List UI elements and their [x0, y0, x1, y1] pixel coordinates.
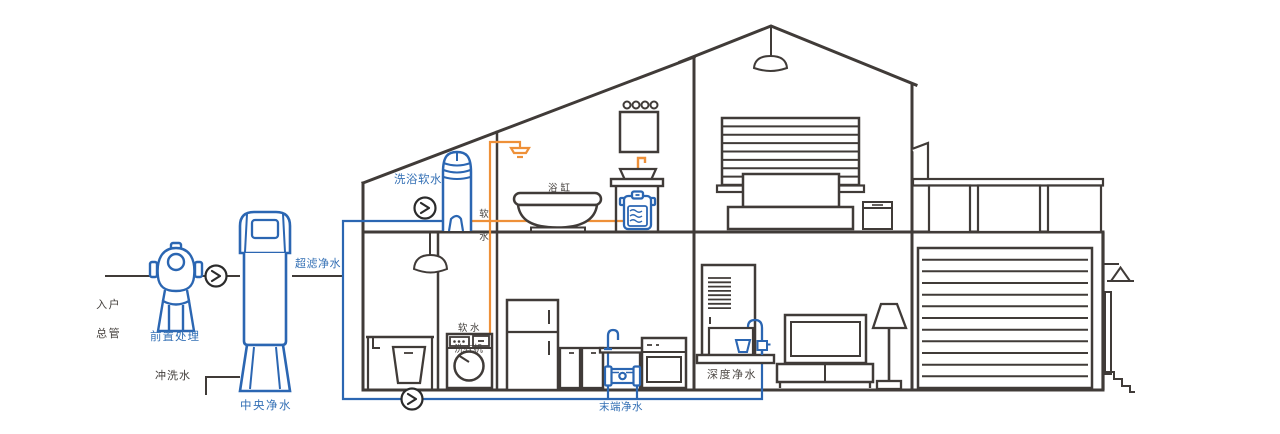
vanity-mirror: [620, 112, 658, 152]
label-flush-water: 冲洗水: [155, 370, 191, 383]
fridge: [507, 300, 558, 390]
terminal-purifier-device: [605, 367, 640, 386]
pendant-lamp-attic: [754, 26, 787, 71]
label-soft-water-line1: 软: [479, 209, 489, 220]
garage-door: [918, 248, 1092, 388]
flow-indicator-main: [206, 266, 227, 287]
diagram-canvas: [0, 0, 1280, 434]
label-washer-line1: 软 水: [458, 323, 480, 334]
wall-lamp: [1103, 264, 1134, 281]
label-pre-treatment: 前置处理: [150, 331, 200, 344]
tv-stand: [777, 364, 873, 388]
shower-head-icon: [511, 148, 529, 157]
label-bathtub: 浴缸: [548, 182, 573, 195]
pre-filter-device: [150, 243, 202, 331]
kitchen-faucet: [604, 330, 618, 349]
bathtub: [514, 193, 601, 232]
label-inlet-main: 入户 总管: [87, 283, 121, 341]
label-soft-water: 软 水: [474, 197, 485, 243]
label-washer-line2: 洗衣机: [454, 344, 483, 355]
oven: [642, 338, 686, 388]
flush-water-pipe: [206, 377, 240, 395]
label-inlet-main-line1: 入户: [96, 299, 121, 311]
pendant-lamp-room: [414, 232, 447, 273]
label-soft-water-line2: 水: [479, 232, 489, 243]
terrace-railing: [912, 143, 1103, 232]
bed: [728, 174, 853, 229]
flow-indicator-bottom: [402, 389, 423, 410]
nightstand: [863, 202, 892, 229]
flow-indicator-attic: [415, 198, 436, 219]
water-heater-device: [620, 192, 655, 230]
label-terminal-purifier: 末端净水: [599, 401, 643, 414]
label-ultrafiltration: 超滤净水: [295, 258, 341, 271]
label-bath-softener: 洗浴软水: [394, 174, 442, 187]
kitchen-cabinets: [560, 348, 603, 388]
water-system-diagram: 入户 总管 前置处理 中央净水 冲洗水 超滤净水 洗浴软水 软 水 浴缸 软 水…: [0, 0, 1280, 434]
label-soft-water-washer: 软 水 洗衣机: [448, 313, 484, 355]
label-central-purifier: 中央净水: [240, 400, 292, 413]
bath-softener-device: [443, 152, 471, 231]
central-purifier-device: [240, 212, 290, 391]
label-inlet-main-line2: 总管: [96, 328, 121, 340]
downspout: [1105, 292, 1111, 374]
tv: [785, 315, 866, 363]
vanity-lights: [624, 102, 658, 109]
label-deep-purifier: 深度净水: [707, 369, 757, 382]
floor-lamp: [873, 304, 906, 389]
laundry-sink: [366, 337, 434, 389]
